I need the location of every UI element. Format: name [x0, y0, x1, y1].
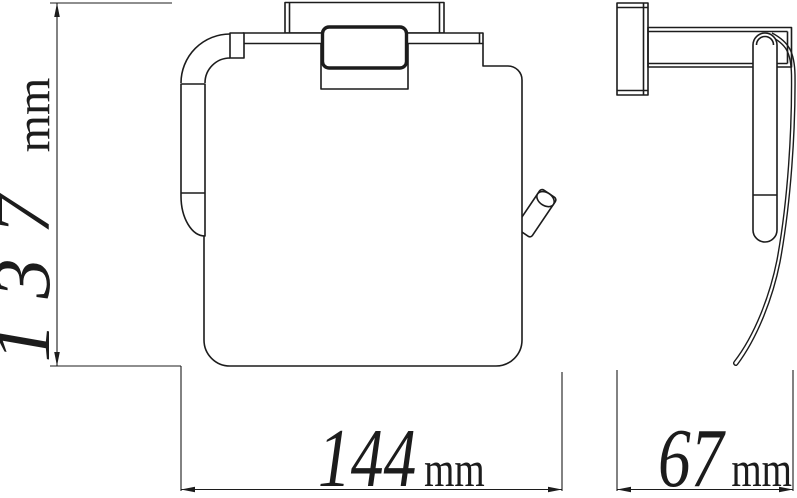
front-view	[181, 3, 557, 367]
mounting-block	[323, 27, 407, 68]
side-hanger-strip	[753, 33, 777, 242]
width-dimension-label: 144 mm	[318, 410, 485, 498]
holder-arm	[181, 84, 205, 236]
holder-arm-elbow	[181, 33, 244, 83]
side-view	[617, 3, 795, 365]
height-dimension	[50, 3, 181, 366]
height-unit: mm	[6, 78, 61, 153]
depth-dimension-label: 67 mm	[658, 410, 792, 498]
depth-value: 67	[658, 410, 724, 498]
height-dimension-label: 137 mm	[0, 70, 66, 370]
cover-front	[204, 44, 522, 367]
depth-unit: mm	[731, 440, 792, 498]
height-value: 137	[0, 170, 69, 362]
width-unit: mm	[424, 440, 485, 498]
side-wall-plate	[617, 3, 648, 95]
width-value: 144	[318, 410, 416, 498]
technical-drawing: 137 mm 144 mm 67 mm	[0, 0, 797, 498]
